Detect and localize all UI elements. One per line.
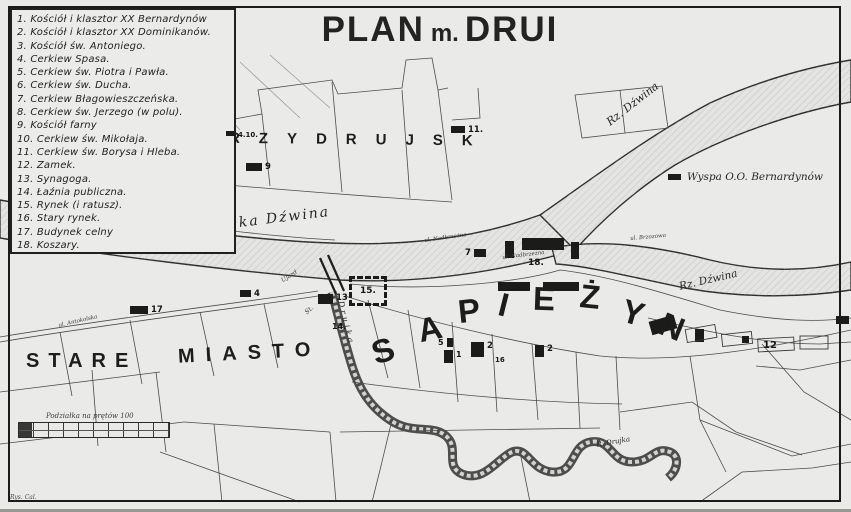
title-word-plan: PLAN — [322, 10, 425, 49]
site-number: 15. — [360, 286, 376, 296]
scale-bar-group: Podziałka na prętów 100 — [18, 412, 170, 438]
building-mark — [226, 131, 235, 136]
legend-item: 16. Stary rynek. — [17, 212, 229, 225]
scanned-map-page: 1. Kościół i klasztor XX Bernardynów 2. … — [0, 0, 851, 512]
site-marker-2: 2 — [471, 342, 493, 357]
site-number: 16 — [495, 356, 505, 365]
scale-bar-filled-segment — [19, 423, 32, 437]
site-marker-17: 17 — [130, 306, 163, 315]
legend-box: 1. Kościół i klasztor XX Bernardynów 2. … — [10, 8, 236, 254]
legend-item: 13. Synagoga. — [17, 173, 229, 186]
building-mark — [240, 290, 251, 297]
site-number: 17 — [151, 306, 163, 315]
island-label: Wyspa O.O. Bernardynów — [687, 171, 823, 183]
legend-item: 1. Kościół i klasztor XX Bernardynów — [17, 13, 229, 26]
site-marker-9: 9 — [246, 163, 271, 172]
legend-item: 8. Cerkiew św. Jerzego (w polu). — [17, 106, 229, 119]
site-marker-4: 4 — [240, 290, 260, 299]
site-number: 14. — [332, 322, 346, 331]
scale-bar — [18, 422, 170, 438]
site-marker-14: 14. — [332, 322, 346, 331]
site-number: 4 — [254, 290, 260, 299]
map-title: PLANm.DRUI — [290, 10, 590, 50]
legend-item: 15. Rynek (i ratusz). — [17, 199, 229, 212]
sapiezyn-letter: E — [532, 280, 555, 319]
building-mark — [246, 163, 262, 171]
legend-item: 12. Zamek. — [17, 159, 229, 172]
building-mark — [535, 345, 544, 357]
sapiezyn-letter: Ż — [578, 277, 602, 317]
scale-caption: Podziałka na prętów 100 — [46, 412, 170, 420]
site-marker-13: 13 — [318, 294, 348, 304]
site-marker-18: 18. — [528, 259, 544, 268]
parcel-lines-south — [0, 270, 851, 502]
title-word-drui: DRUI — [465, 10, 559, 49]
site-marker-2b: 2 — [535, 345, 553, 357]
site-number: 12 — [763, 341, 777, 350]
legend-item: 10. Cerkiew św. Mikołaja. — [17, 133, 229, 146]
site-number: 4.10. — [238, 131, 258, 140]
site-number: 1 — [456, 350, 462, 359]
site-marker-11: 11. — [451, 126, 483, 135]
building-mark — [444, 350, 453, 363]
legend-item: 7. Cerkiew Błagowieszczeńska. — [17, 93, 229, 106]
site-number: 2 — [487, 342, 493, 351]
site-marker-4-10: 4.10. — [226, 131, 258, 140]
site-marker-7: 7 — [465, 249, 486, 258]
island-marker — [668, 174, 681, 180]
building-mark — [318, 294, 333, 304]
legend-item: 2. Kościół i klasztor XX Dominikanów. — [17, 26, 229, 39]
legend-item: 18. Koszary. — [17, 239, 229, 252]
site-number: 7 — [465, 249, 471, 258]
site-marker-12: 12 — [763, 341, 777, 350]
legend-item: 3. Kościół św. Antoniego. — [17, 40, 229, 53]
site-marker-1: 1 — [444, 350, 462, 363]
site-number: 18. — [528, 259, 544, 268]
site-number: 2 — [547, 345, 553, 354]
title-abbrev-m: m. — [431, 20, 459, 47]
legend-item: 6. Cerkiew św. Ducha. — [17, 79, 229, 92]
site-number: 11. — [468, 126, 483, 135]
island-label-group: Wyspa O.O. Bernardynów — [668, 171, 823, 183]
building-mark — [474, 249, 486, 257]
building-mark — [447, 338, 453, 347]
site-number: 13 — [336, 294, 348, 303]
building-mark — [130, 306, 148, 314]
site-marker-5: 5 — [438, 338, 453, 347]
legend-item: 5. Cerkiew św. Piotra i Pawła. — [17, 66, 229, 79]
legend-item: 4. Cerkiew Spasa. — [17, 53, 229, 66]
site-number: 5 — [438, 338, 444, 347]
legend-item: 9. Kościół farny — [17, 119, 229, 132]
legend-item: 11. Cerkiew św. Borysa i Hleba. — [17, 146, 229, 159]
building-mark — [451, 126, 465, 133]
legend-item: 17. Budynek celny — [17, 226, 229, 239]
site-number: 9 — [265, 163, 271, 172]
site-marker-15-rynek: 15. — [349, 276, 387, 306]
cartographer-signature: Rys. Cal. — [10, 494, 37, 501]
building-mark — [471, 342, 484, 357]
site-marker-16: 16 — [495, 356, 505, 365]
district-label-stare: STARE — [26, 350, 137, 373]
legend-item: 14. Łaźnia publiczna. — [17, 186, 229, 199]
sapiezyn-letter: P — [456, 291, 482, 331]
